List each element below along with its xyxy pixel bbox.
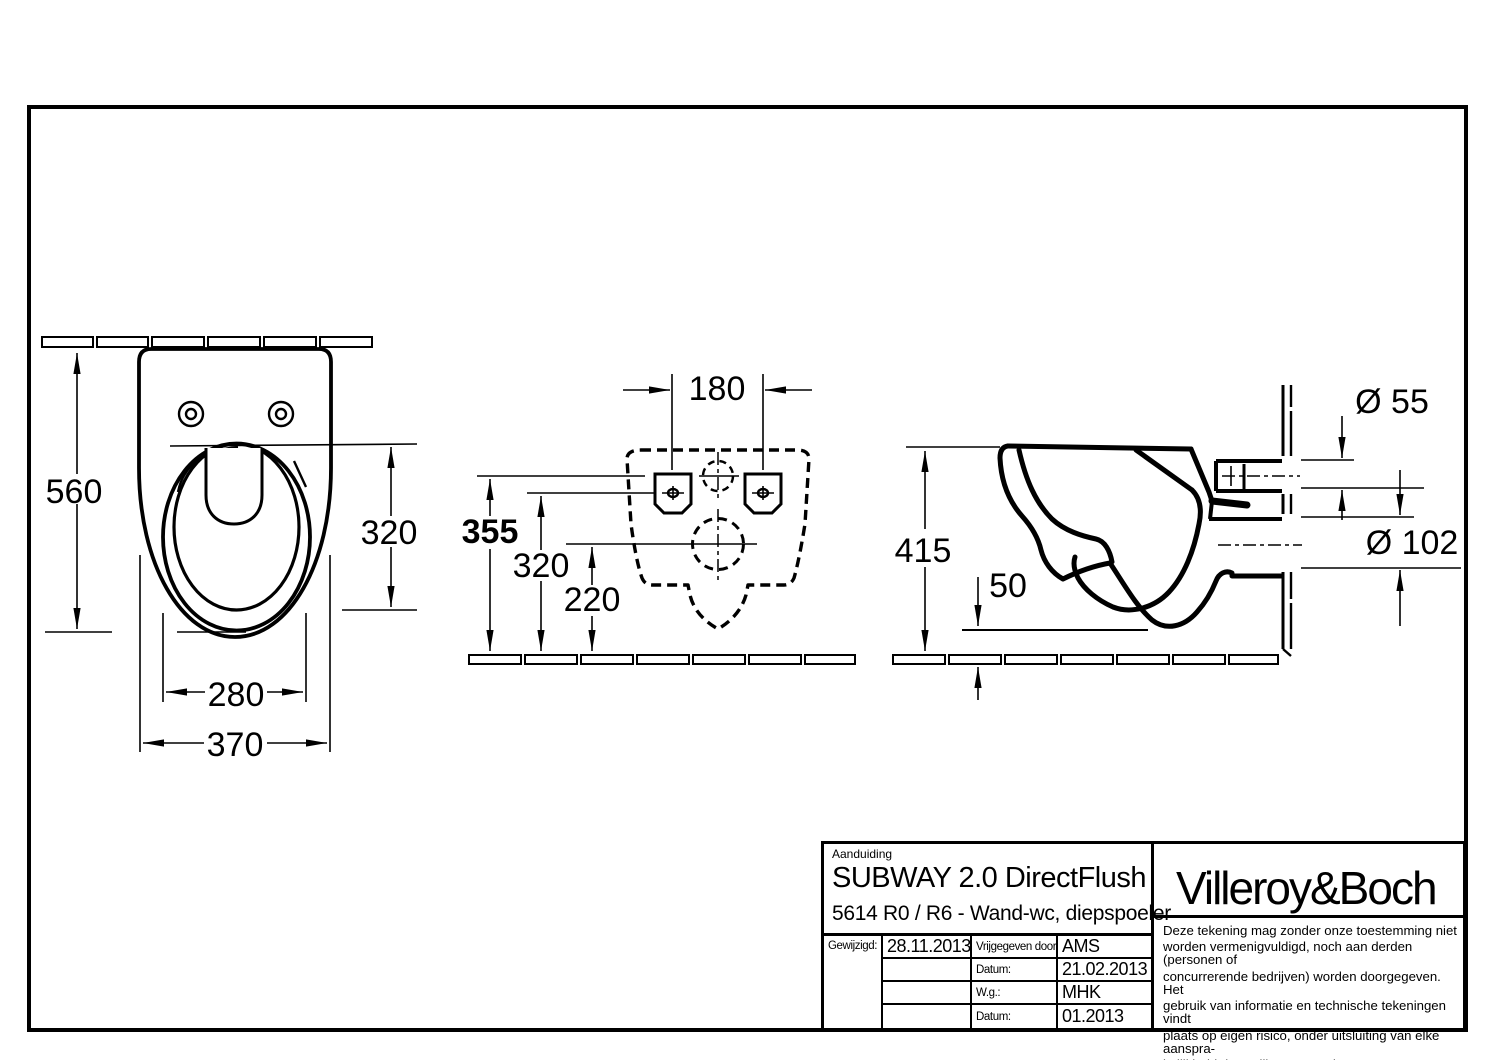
- title-block-left: Aanduiding SUBWAY 2.0 DirectFlush 5614 R…: [824, 844, 1154, 1028]
- dim-label-height: 415: [895, 532, 952, 570]
- disclaimer-line: worden vermenigvuldigd, noch aan derden …: [1163, 940, 1459, 966]
- date1-value: 21.02.2013: [1058, 959, 1151, 982]
- dim-label-supply-height: 355: [462, 513, 519, 551]
- dim-280: 280: [163, 613, 306, 714]
- outlet-spigot: [1209, 501, 1302, 545]
- brand-logo: Villeroy&Boch: [1154, 844, 1463, 918]
- dim-label-supply-diameter: Ø 55: [1355, 383, 1429, 421]
- revision-label: Gewijzigd:: [824, 936, 883, 1028]
- title-block-right: Villeroy&Boch Deze tekening mag zonder o…: [1154, 844, 1463, 1028]
- product-subtitle: 5614 R0 / R6 - Wand-wc, diepspoeler: [832, 902, 1143, 926]
- bowl-chord-line: [170, 444, 417, 446]
- dim-label-total-width: 370: [207, 726, 264, 764]
- disclaimer-line: Deze tekening mag zonder onze toestemmin…: [1163, 924, 1459, 937]
- dim-label-seat-width: 280: [208, 676, 265, 714]
- toilet-section-profile: [1000, 446, 1302, 626]
- floor-tiles-side-view: [893, 655, 1278, 664]
- wg-value: MHK: [1058, 982, 1151, 1005]
- empty-cell: [883, 959, 972, 982]
- revision-date: 28.11.2013: [883, 936, 972, 959]
- dim-label-bolt-height: 320: [513, 547, 570, 585]
- dim-415: 415: [895, 447, 1000, 651]
- wg-label: W.g.:: [972, 982, 1058, 1005]
- floor-tiles-rear-view: [469, 655, 855, 664]
- rear-view: 180 355 320 220: [462, 370, 855, 664]
- dim-label-bolt-spacing: 180: [689, 370, 746, 408]
- released-by-label: Vrijgegeven door:: [972, 936, 1058, 959]
- dim-label-floor-clearance: 50: [989, 567, 1027, 605]
- dim-label-depth: 560: [46, 473, 103, 511]
- dim-dia-55: Ø 55: [1301, 383, 1429, 520]
- released-by-value: AMS: [1058, 936, 1151, 959]
- dim-label-outlet-diameter: Ø 102: [1366, 524, 1459, 562]
- designation-cell: Aanduiding SUBWAY 2.0 DirectFlush 5614 R…: [824, 844, 1151, 936]
- date2-value: 01.2013: [1058, 1005, 1151, 1028]
- dim-370: 370: [140, 555, 330, 764]
- mounting-bracket-right: [745, 474, 781, 513]
- top-view: 560 320 280 370: [42, 337, 417, 764]
- disclaimer-text: Deze tekening mag zonder onze toestemmin…: [1154, 918, 1463, 1060]
- revision-table: Gewijzigd: 28.11.2013 Vrijgegeven door: …: [824, 936, 1151, 1028]
- product-title: SUBWAY 2.0 DirectFlush: [832, 862, 1143, 895]
- dim-label-outlet-height: 220: [564, 581, 621, 619]
- designation-label: Aanduiding: [832, 847, 1143, 861]
- dim-320-rear-view: 320: [513, 493, 656, 651]
- empty-cell: [883, 1005, 972, 1028]
- dim-320-top-view: 320: [342, 447, 417, 610]
- side-view: 415 50 Ø 55 Ø 102: [893, 383, 1461, 700]
- dim-220: 220: [564, 544, 757, 651]
- title-block: Aanduiding SUBWAY 2.0 DirectFlush 5614 R…: [821, 841, 1466, 1031]
- technical-drawing-page: 560 320 280 370: [0, 0, 1500, 1060]
- disclaimer-line: concurrerende bedrijven) worden doorgege…: [1163, 970, 1459, 996]
- dim-label-bowl-length: 320: [361, 514, 418, 552]
- disclaimer-line: gebruik van informatie en technische tek…: [1163, 999, 1459, 1025]
- disclaimer-line: plaats op eigen risico, onder uitsluitin…: [1163, 1029, 1459, 1055]
- dim-50: 50: [962, 567, 1148, 700]
- empty-cell: [883, 982, 972, 1005]
- wall-tiles-top-view: [42, 337, 372, 347]
- flush-distributor: [206, 448, 262, 524]
- date2-label: Datum:: [972, 1005, 1058, 1028]
- supply-pipe-circle: [699, 452, 739, 500]
- dim-dia-102: Ø 102: [1301, 470, 1461, 626]
- mounting-bracket-left: [655, 474, 691, 513]
- wall-section: [1283, 385, 1291, 656]
- supply-spigot: [1216, 461, 1300, 491]
- mounting-holes: [179, 402, 293, 426]
- date1-label: Datum:: [972, 959, 1058, 982]
